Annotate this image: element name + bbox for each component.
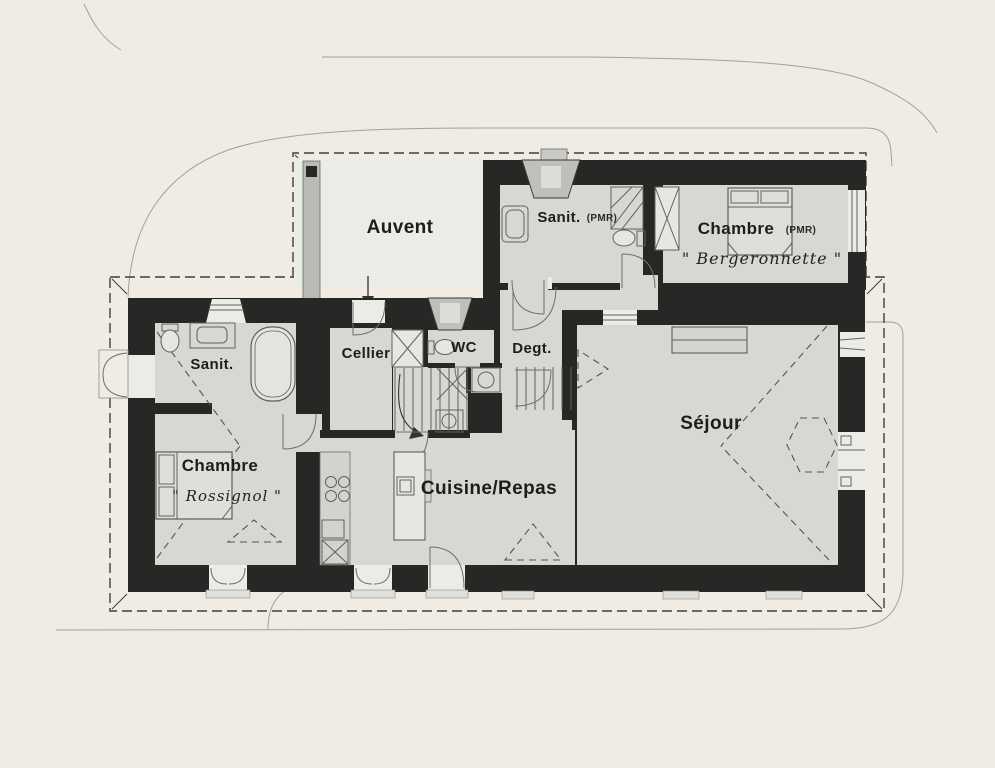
hearth-bench [672, 327, 747, 353]
shutter-mark [502, 591, 534, 599]
label-sanit-pmr: Sanit. [537, 209, 580, 226]
label-chambre-name: " Rossignol " [172, 487, 282, 505]
bathtub-icon [251, 327, 295, 401]
window-shutters-icon [99, 350, 155, 398]
label-sejour: Séjour [680, 413, 742, 434]
label-degt: Degt. [512, 340, 552, 357]
label-chambre: Chambre [182, 456, 259, 475]
kitchen-counter [320, 452, 350, 565]
basin-nook-floor [470, 367, 502, 393]
floor-plan-page: Auvent Sanit. (PMR) Chambre (PMR) " Berg… [0, 0, 995, 768]
closet-icon [392, 330, 423, 367]
label-cuisine: Cuisine/Repas [421, 478, 557, 499]
label-wc: WC [451, 339, 477, 356]
cellier-fixtures [392, 330, 423, 367]
window-icon [848, 190, 865, 252]
sejour-floor [577, 325, 838, 565]
chambre-pmr-door-gap [620, 275, 658, 290]
window-shutters-icon [206, 565, 250, 598]
closet-icon [655, 187, 679, 250]
degt-floor [500, 312, 572, 433]
shutter-mark [766, 591, 802, 599]
sanit-door-gap [212, 403, 298, 414]
label-auvent: Auvent [367, 217, 434, 238]
post-column [303, 161, 320, 299]
window-icon [206, 299, 246, 323]
label-chambre-pmr-name: " Bergeronnette " [682, 249, 842, 268]
shutter-mark [663, 591, 699, 599]
label-sanit-pmr-suffix: (PMR) [587, 213, 617, 224]
window-icon [840, 332, 865, 357]
floor-plan-drawing: Auvent Sanit. (PMR) Chambre (PMR) " Berg… [0, 0, 995, 768]
label-chambre-pmr: Chambre [698, 219, 775, 238]
label-cellier: Cellier [342, 345, 391, 362]
window-shutters-icon [351, 565, 395, 598]
window-icon [603, 310, 637, 325]
label-sanit: Sanit. [190, 356, 233, 373]
label-chambre-pmr-suffix: (PMR) [786, 225, 816, 236]
main-building [99, 254, 865, 599]
cellier-floor [330, 328, 392, 430]
window-icon [838, 432, 865, 490]
sanit-pmr-door-gap [508, 275, 548, 290]
